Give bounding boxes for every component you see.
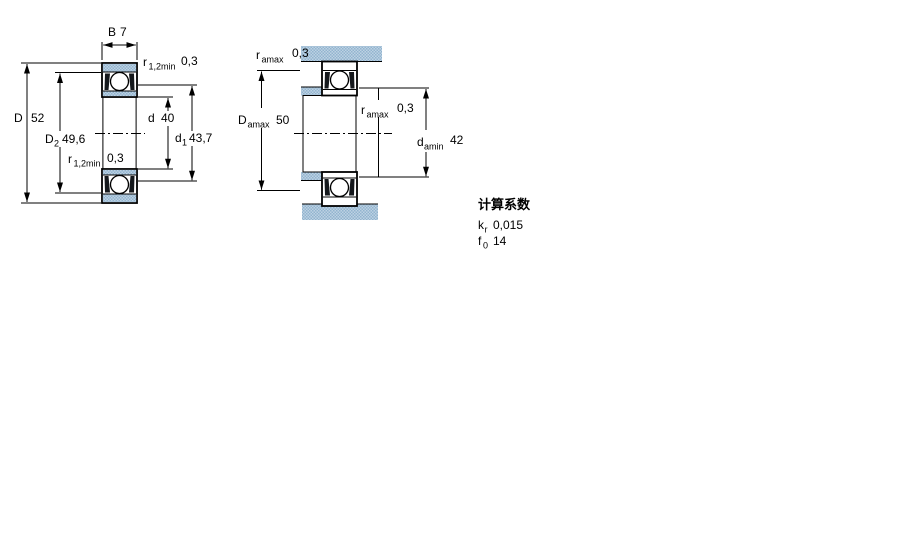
dim-ra-top-subscript: amax — [262, 55, 285, 65]
shaft-shoulder-bottom — [301, 172, 322, 181]
dim-d1-symbol: d — [175, 131, 182, 145]
factor-f0-symbol: f — [478, 234, 482, 248]
dim-D2-value: 49,6 — [62, 132, 86, 146]
shaft-shoulder-top — [301, 87, 322, 96]
dim-damin-subscript: amin — [424, 142, 444, 152]
dim-Damax-symbol: D — [238, 113, 247, 127]
dim-d1-subscript: 1 — [182, 138, 187, 148]
right-mounting-view: r amax 0,3 D amax 50 r amax 0,3 d amin 4… — [238, 46, 464, 220]
right-bearing-top-section — [322, 62, 357, 96]
factor-f0-value: 14 — [493, 234, 507, 248]
dim-B-value: 7 — [120, 25, 127, 39]
dim-D-value: 52 — [31, 111, 45, 125]
dim-d-value: 40 — [161, 111, 175, 125]
dim-D-symbol: D — [14, 111, 23, 125]
dim-ra-top-symbol: r — [256, 48, 260, 62]
dim-d-symbol: d — [148, 111, 155, 125]
calculation-factors: 计算系数 k r 0,015 f 0 14 — [478, 197, 531, 251]
dim-D2-subscript: 2 — [54, 139, 59, 149]
dim-Damax-value: 50 — [276, 113, 290, 127]
dim-ra-mid-symbol: r — [361, 103, 365, 117]
dim-ra-mid-subscript: amax — [367, 110, 390, 120]
dim-r12-bottom-value: 0,3 — [107, 151, 124, 165]
dim-Damax-subscript: amax — [248, 120, 271, 130]
left-bearing-bottom-section — [102, 169, 137, 203]
dim-r12-bottom-symbol: r — [68, 152, 72, 166]
dim-B-symbol: B — [108, 25, 116, 39]
dim-r12-top-symbol: r — [143, 55, 147, 69]
left-bearing-top-section — [102, 63, 137, 97]
factor-kr-value: 0,015 — [493, 218, 523, 232]
dim-r12-bottom-subscript: 1,2min — [74, 159, 101, 169]
factor-f0-subscript: 0 — [483, 241, 488, 251]
dim-ra-mid-value: 0,3 — [397, 101, 414, 115]
dim-r12-top-value: 0,3 — [181, 54, 198, 68]
right-bearing-bottom-section — [322, 172, 357, 206]
housing-abutment-top — [301, 46, 382, 62]
factor-kr-subscript: r — [485, 225, 488, 235]
dim-damin-symbol: d — [417, 135, 424, 149]
bearing-drawing-page: B 7 r 1,2min 0,3 D 52 D 2 49,6 d 40 d 1 … — [0, 0, 900, 560]
dim-r12-top-subscript: 1,2min — [149, 62, 176, 72]
bearing-technical-drawing: B 7 r 1,2min 0,3 D 52 D 2 49,6 d 40 d 1 … — [0, 0, 900, 560]
dim-damin-value: 42 — [450, 133, 464, 147]
dim-D2-symbol: D — [45, 132, 54, 146]
dim-ra-top-value: 0,3 — [292, 46, 309, 60]
calc-factors-title: 计算系数 — [478, 197, 531, 212]
left-section-view: B 7 r 1,2min 0,3 D 52 D 2 49,6 d 40 d 1 … — [14, 25, 213, 203]
dim-d1-value: 43,7 — [189, 131, 213, 145]
